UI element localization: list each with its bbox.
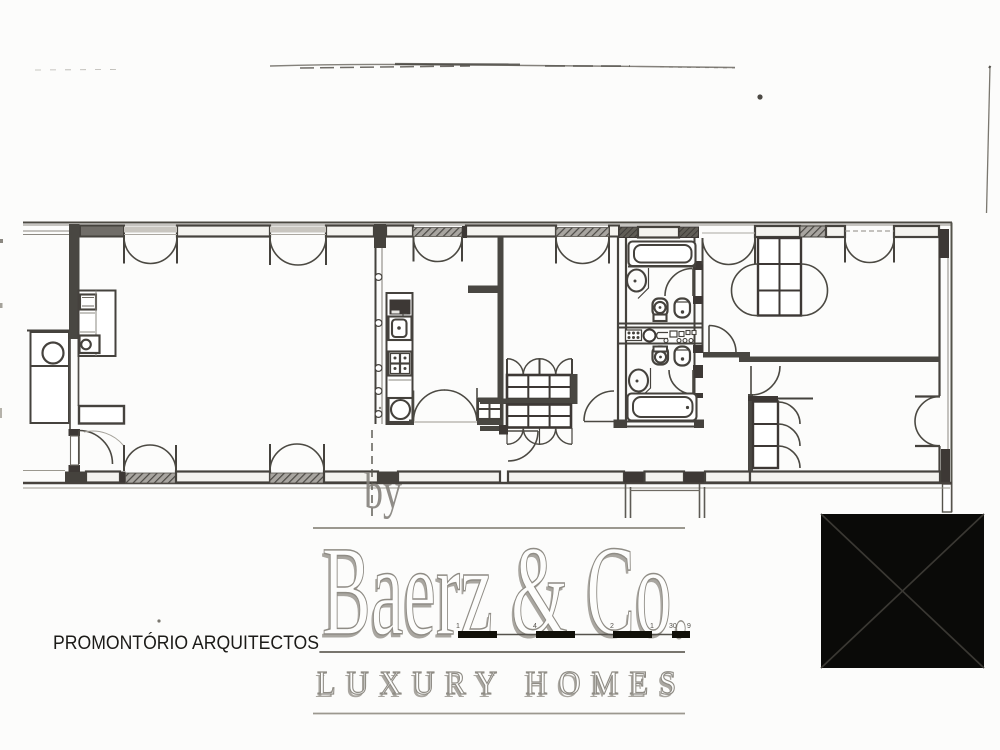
svg-text:by: by bbox=[364, 463, 402, 520]
svg-text:2: 2 bbox=[610, 623, 614, 630]
svg-text:PROMONTÓRIO ARQUITECTOS: PROMONTÓRIO ARQUITECTOS bbox=[53, 631, 319, 654]
svg-text:Baerz & Co.: Baerz & Co. bbox=[322, 520, 690, 662]
svg-text:1: 1 bbox=[650, 623, 654, 630]
svg-text:9: 9 bbox=[687, 623, 691, 630]
svg-text:LUXURY HOMES: LUXURY HOMES bbox=[317, 665, 687, 702]
svg-text:30: 30 bbox=[669, 623, 677, 630]
svg-text:4: 4 bbox=[533, 623, 537, 630]
svg-text:1: 1 bbox=[456, 623, 460, 630]
